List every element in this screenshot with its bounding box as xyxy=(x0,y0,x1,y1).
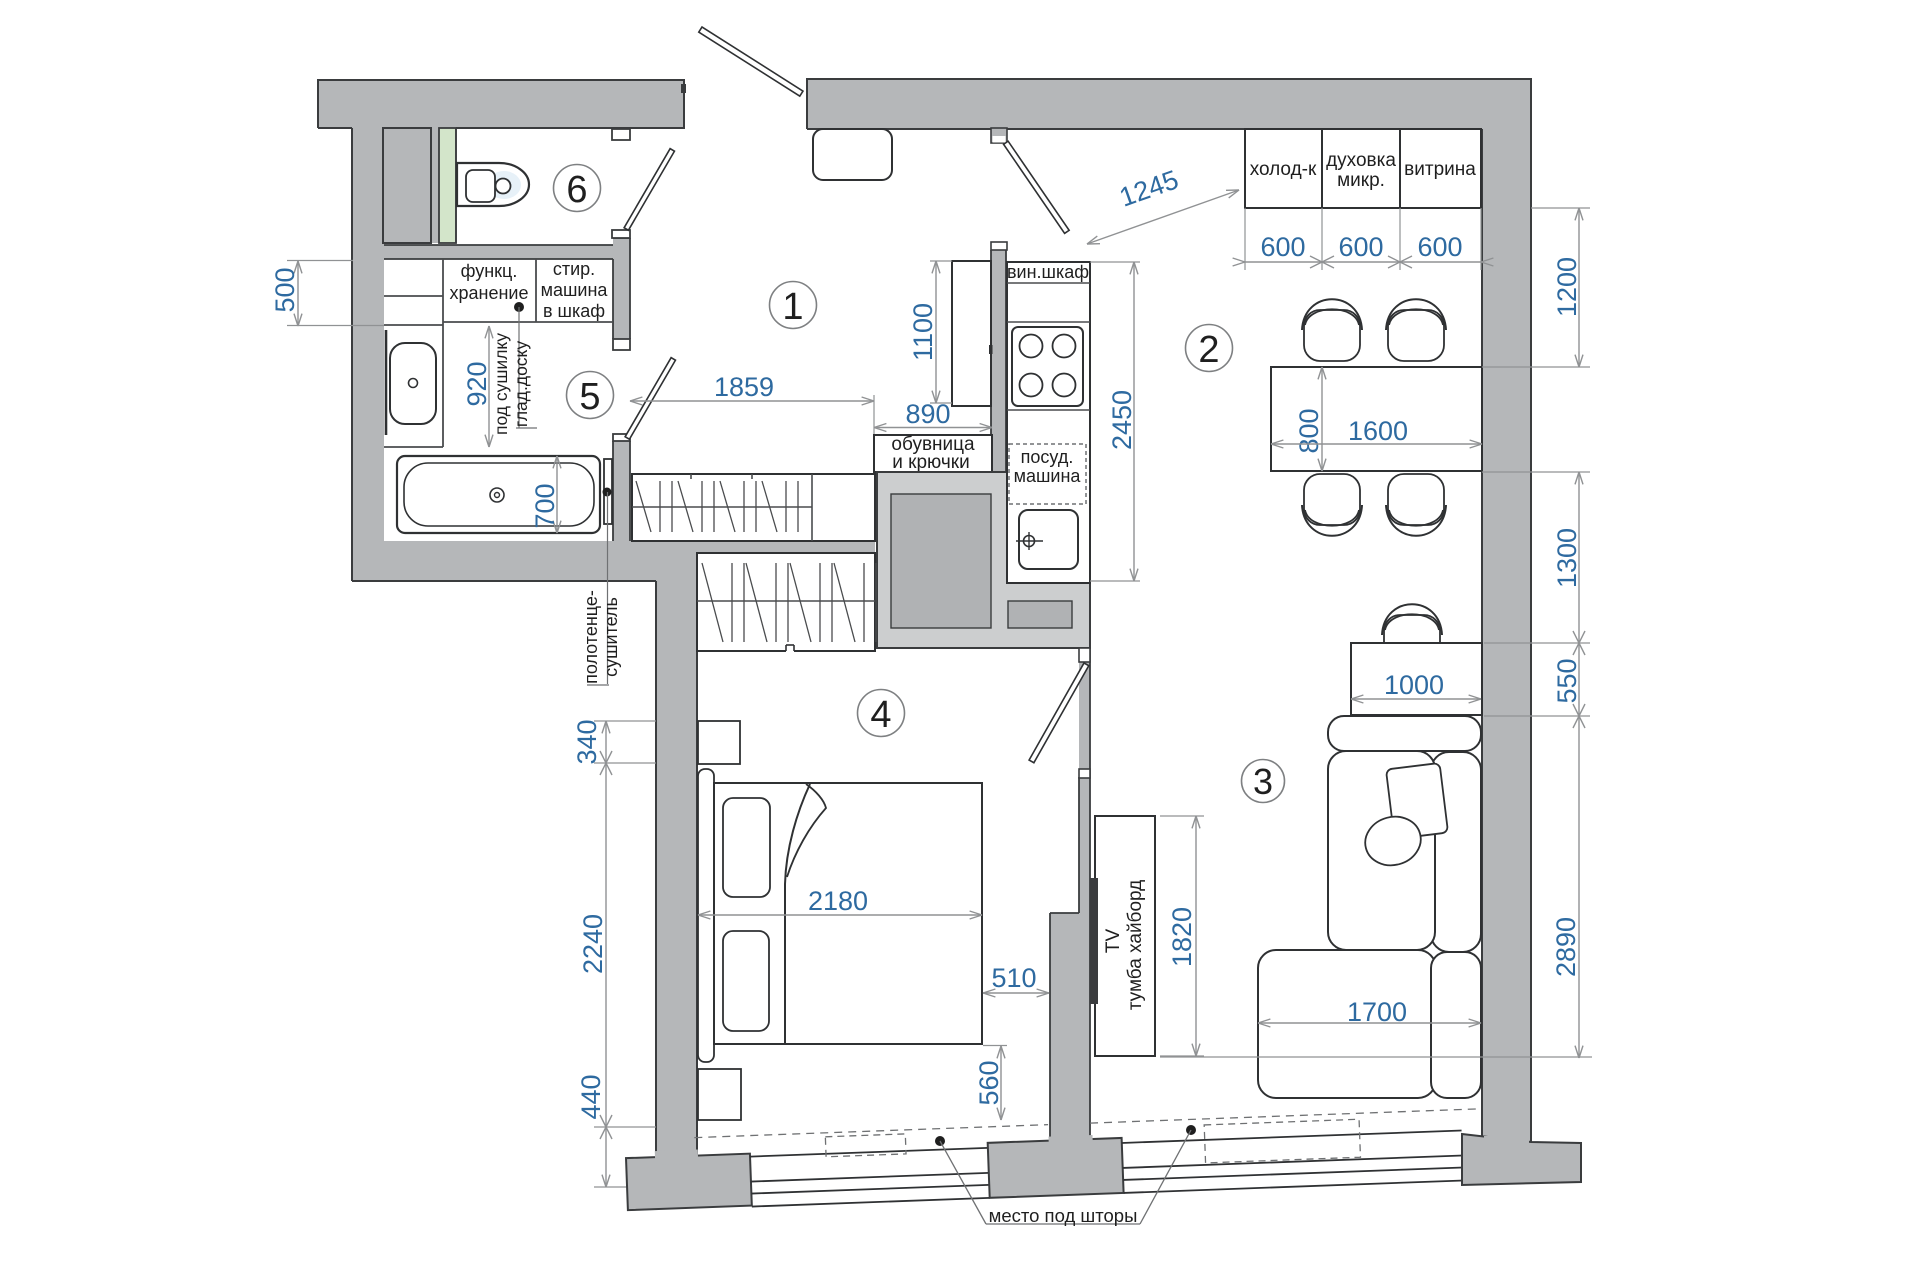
svg-text:полотенце-: полотенце- xyxy=(581,590,601,684)
svg-text:1600: 1600 xyxy=(1348,416,1408,446)
svg-text:глад.доску: глад.доску xyxy=(511,341,531,428)
svg-text:под сушилку: под сушилку xyxy=(491,333,511,435)
svg-text:машина: машина xyxy=(1014,466,1082,486)
svg-text:600: 600 xyxy=(1338,232,1383,262)
svg-text:920: 920 xyxy=(462,361,492,406)
svg-text:в шкаф: в шкаф xyxy=(543,301,605,321)
svg-text:800: 800 xyxy=(1294,408,1324,453)
svg-text:2180: 2180 xyxy=(808,886,868,916)
svg-text:1200: 1200 xyxy=(1552,257,1582,317)
svg-text:1820: 1820 xyxy=(1167,907,1197,967)
svg-text:функц.: функц. xyxy=(461,261,518,281)
svg-text:вин.шкаф: вин.шкаф xyxy=(1007,262,1089,282)
svg-text:хранение: хранение xyxy=(450,283,529,303)
svg-text:1859: 1859 xyxy=(714,372,774,402)
svg-text:600: 600 xyxy=(1417,232,1462,262)
svg-text:2450: 2450 xyxy=(1107,390,1137,450)
svg-text:2240: 2240 xyxy=(578,914,608,974)
svg-text:тумба хайборд: тумба хайборд xyxy=(1125,880,1146,1010)
svg-text:1300: 1300 xyxy=(1552,528,1582,588)
svg-text:2890: 2890 xyxy=(1551,917,1581,977)
svg-text:1700: 1700 xyxy=(1347,997,1407,1027)
svg-text:духовка: духовка xyxy=(1326,150,1396,171)
svg-text:1: 1 xyxy=(782,286,803,328)
svg-text:и крючки: и крючки xyxy=(892,452,969,473)
svg-text:3: 3 xyxy=(1253,761,1273,802)
svg-text:машина: машина xyxy=(541,280,609,300)
svg-text:560: 560 xyxy=(974,1060,1004,1105)
svg-text:340: 340 xyxy=(572,719,602,764)
svg-text:место под шторы: место под шторы xyxy=(989,1205,1138,1226)
svg-text:6: 6 xyxy=(566,169,587,211)
svg-text:сушитель: сушитель xyxy=(601,597,621,677)
svg-text:550: 550 xyxy=(1552,658,1582,703)
svg-text:510: 510 xyxy=(991,963,1036,993)
svg-text:посуд.: посуд. xyxy=(1021,447,1074,467)
svg-text:витрина: витрина xyxy=(1404,159,1476,180)
svg-text:2: 2 xyxy=(1198,329,1219,371)
svg-text:440: 440 xyxy=(576,1074,606,1119)
svg-text:микр.: микр. xyxy=(1337,170,1385,191)
svg-text:700: 700 xyxy=(530,483,560,528)
svg-text:500: 500 xyxy=(270,267,300,312)
svg-text:1000: 1000 xyxy=(1384,670,1444,700)
svg-text:TV: TV xyxy=(1103,929,1124,954)
svg-text:1100: 1100 xyxy=(908,303,938,361)
svg-text:холод-к: холод-к xyxy=(1250,159,1317,180)
svg-text:600: 600 xyxy=(1260,232,1305,262)
svg-text:стир.: стир. xyxy=(553,259,595,279)
svg-text:4: 4 xyxy=(870,694,891,736)
svg-text:5: 5 xyxy=(579,376,600,418)
